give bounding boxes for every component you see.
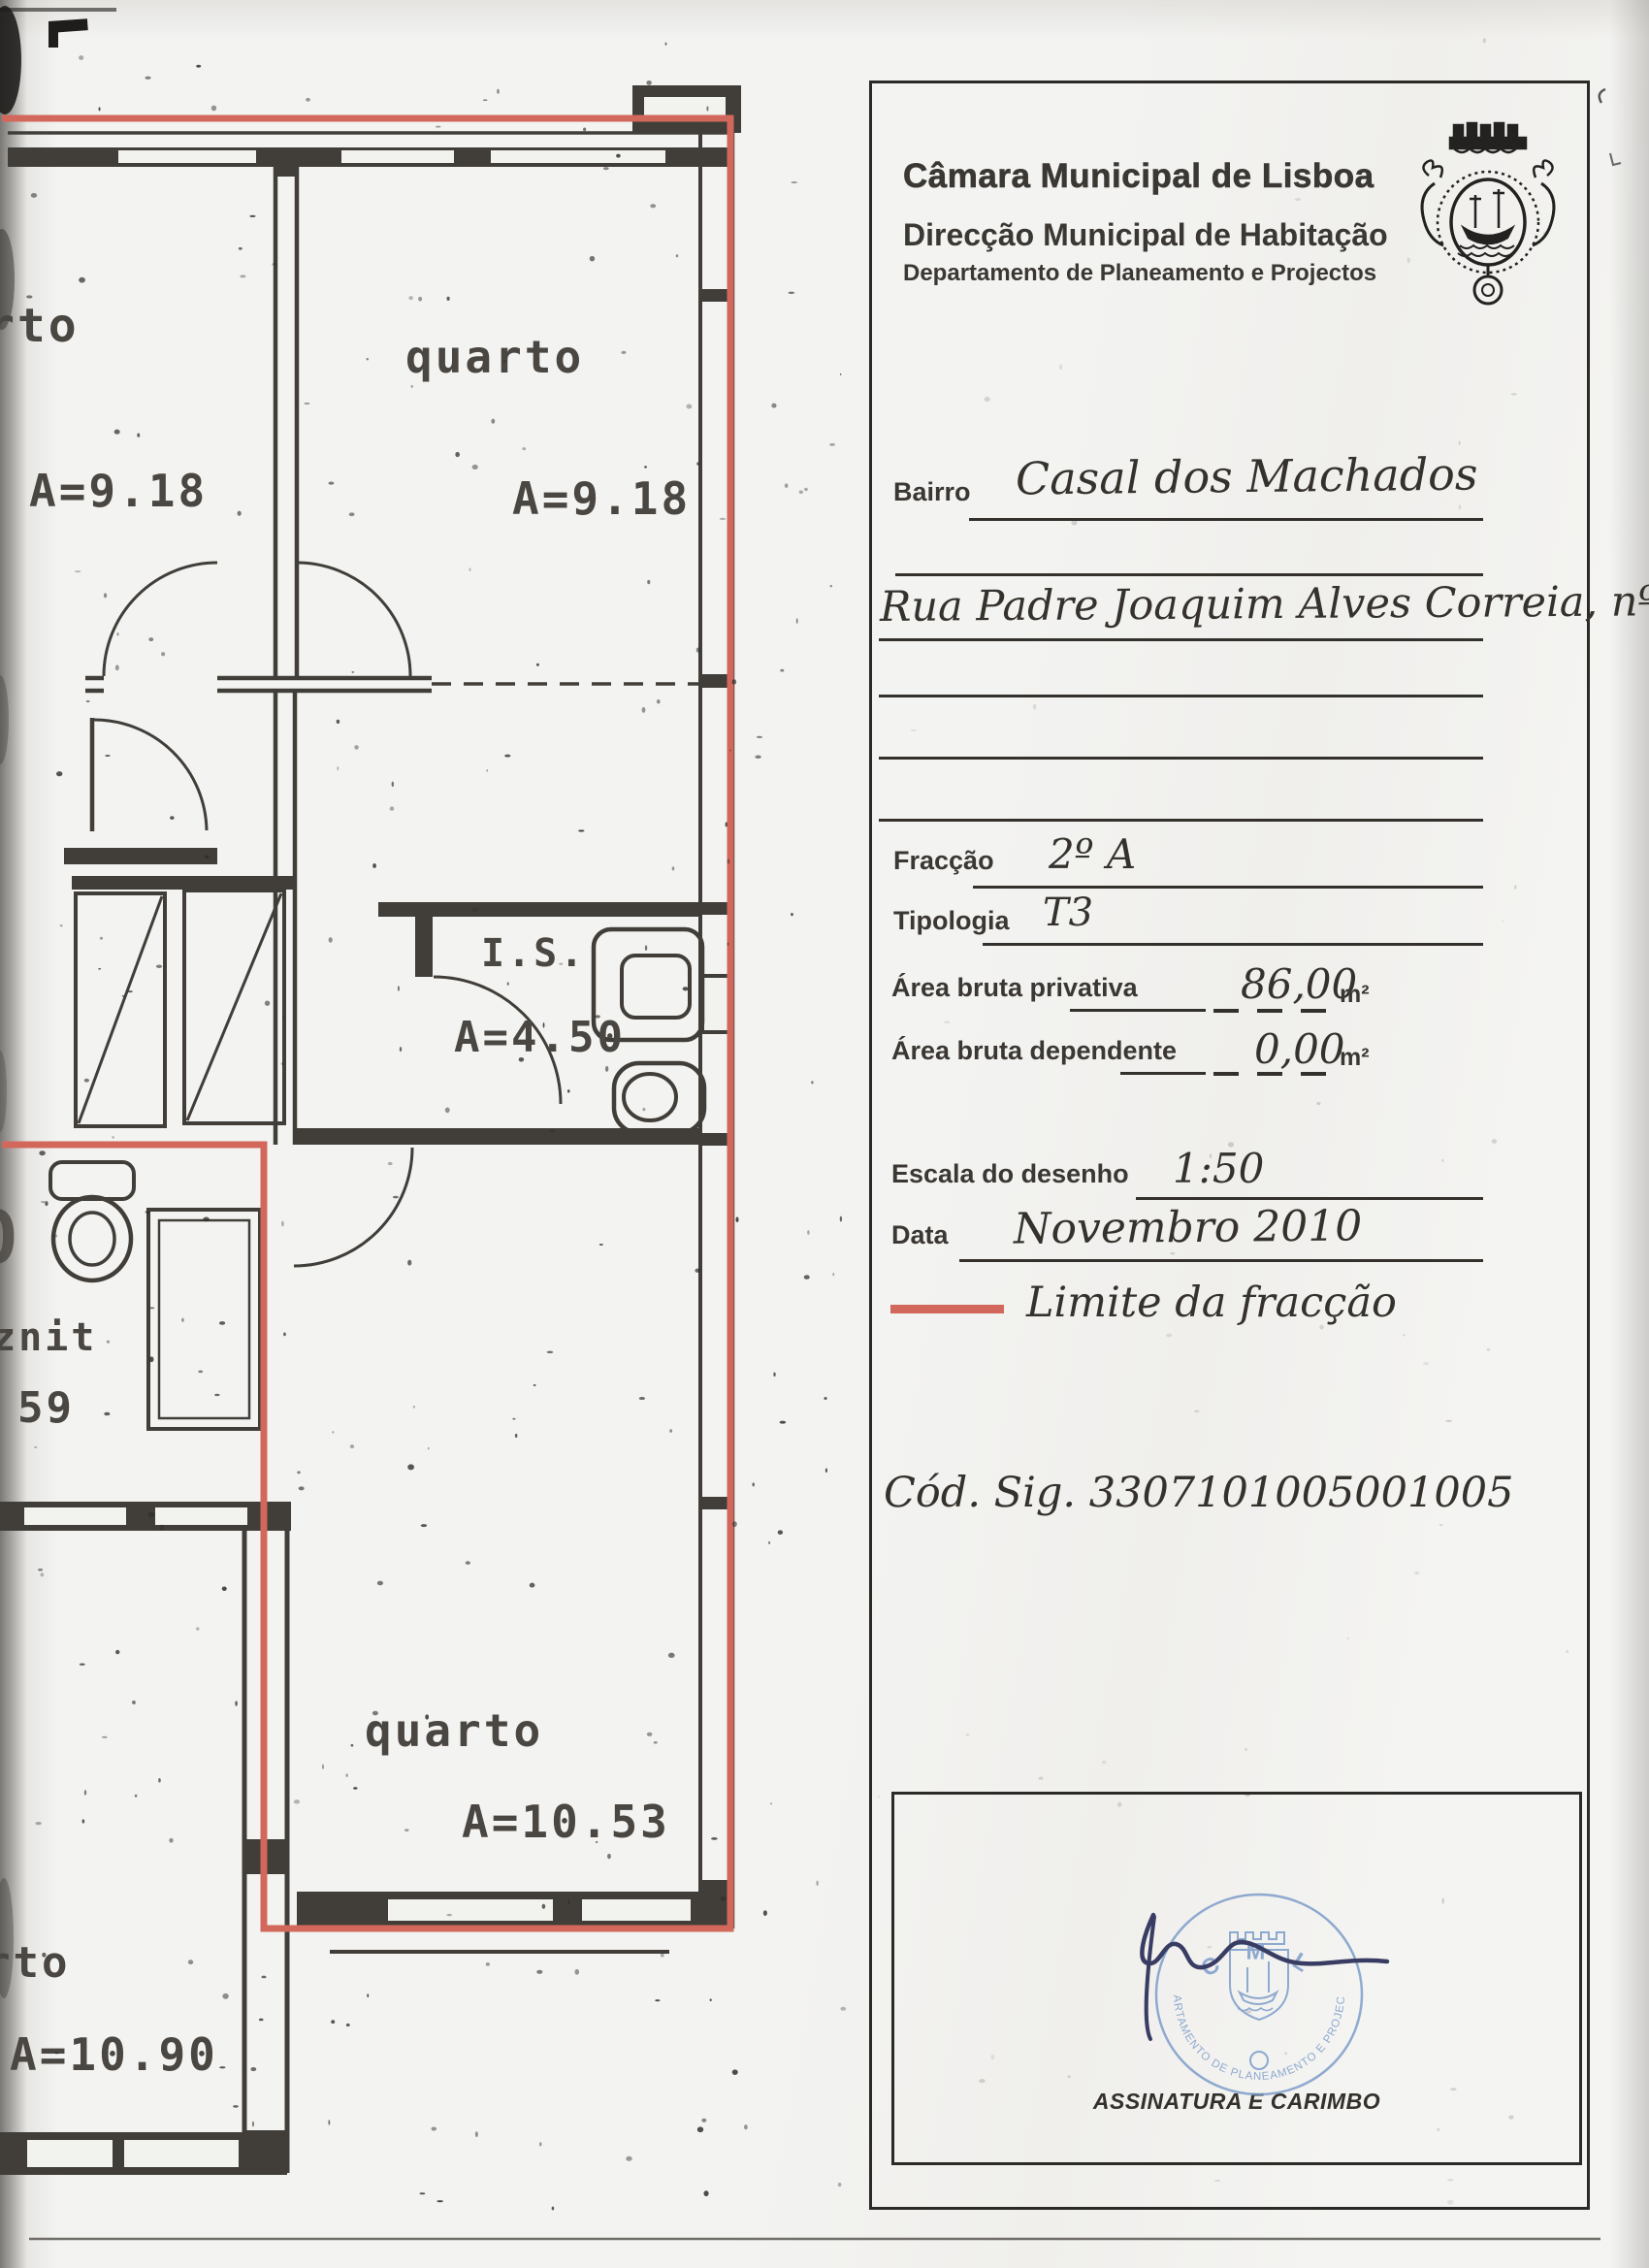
sanit-area: 59 — [17, 1383, 75, 1433]
cml-stamp: C M L DEPARTAMENTO DE PLANEAMENTO E PROJ… — [1050, 1849, 1457, 2140]
title-block-panel: Câmara Municipal de Lisboa Direcção Muni… — [869, 81, 1590, 2210]
bairro-label: Bairro — [893, 477, 971, 507]
area-dependente-value: 0,00 — [1254, 1025, 1345, 1073]
area-privativa-underline — [1070, 1009, 1206, 1012]
room-tl-area: A=9.18 — [29, 465, 208, 517]
area-dependente-unit: m² — [1340, 1044, 1370, 1072]
scanned-floor-plan-page: rto A=9.18 quarto A=9.18 I.S. A=4.50 O z… — [0, 0, 1649, 2268]
bairro-value: Casal dos Machados — [1016, 448, 1478, 505]
data-underline — [959, 1259, 1483, 1262]
room-labels: rto A=9.18 quarto A=9.18 I.S. A=4.50 O z… — [0, 299, 691, 2081]
bathroom-fixtures — [50, 929, 704, 1429]
org-line-2: Direcção Municipal de Habitação — [903, 217, 1388, 253]
bath-area: A=4.50 — [454, 1013, 626, 1062]
org-line-3: Departamento de Planeamento e Projectos — [903, 260, 1376, 287]
room-tr-label: quarto — [405, 331, 584, 383]
tipologia-underline — [983, 943, 1483, 946]
data-value: Novembro 2010 — [1014, 1201, 1363, 1253]
sanit-label: znit — [0, 1315, 97, 1360]
limite-red-swatch — [890, 1305, 1004, 1313]
area-privativa-unit: m² — [1340, 981, 1370, 1009]
limite-label: Limite da fracção — [1026, 1279, 1397, 1327]
fraccao-underline — [973, 886, 1483, 889]
room-b-area: A=10.53 — [462, 1796, 670, 1848]
cod-sig: Cód. Sig. 3307101005001005 — [884, 1469, 1513, 1517]
signature-box: ASSINATURA E CARIMBO C M L DEPARTAMENTO … — [891, 1792, 1582, 2165]
fraccao-value: 2º A — [1049, 830, 1136, 878]
room-tr-area: A=9.18 — [512, 472, 691, 525]
fraccao-label: Fracção — [893, 846, 994, 876]
room-b-label: quarto — [365, 1704, 543, 1757]
blank-underline — [879, 819, 1483, 822]
blank-underline — [895, 573, 1483, 576]
tipologia-value: T3 — [1043, 891, 1093, 935]
address-value: Rua Padre Joaquim Alves Correia, nº 6 — [880, 577, 1649, 632]
data-label: Data — [891, 1220, 949, 1250]
address-underline — [879, 638, 1483, 641]
escala-value: 1:50 — [1173, 1145, 1264, 1192]
org-line-1: Câmara Municipal de Lisboa — [903, 157, 1374, 196]
blank-underline — [879, 757, 1483, 760]
bairro-underline — [969, 518, 1483, 521]
blank-underline — [879, 695, 1483, 697]
room-bl-label: rto — [0, 1938, 70, 1988]
escala-label: Escala do desenho — [891, 1159, 1129, 1189]
bath-label: I.S. — [481, 931, 586, 976]
room-bl-area: A=10.90 — [10, 2028, 218, 2081]
sanit-cut-glyph: O — [0, 1194, 20, 1280]
area-dependente-underline — [1120, 1072, 1206, 1075]
area-privativa-label: Área bruta privativa — [891, 973, 1138, 1003]
escala-underline — [1136, 1197, 1483, 1200]
lisbon-coat-of-arms-icon — [1402, 119, 1574, 318]
room-tl-label: rto — [0, 299, 80, 353]
area-dependente-label: Área bruta dependente — [891, 1036, 1177, 1066]
tipologia-label: Tipologia — [893, 906, 1010, 936]
area-privativa-dashes — [1213, 1009, 1332, 1013]
